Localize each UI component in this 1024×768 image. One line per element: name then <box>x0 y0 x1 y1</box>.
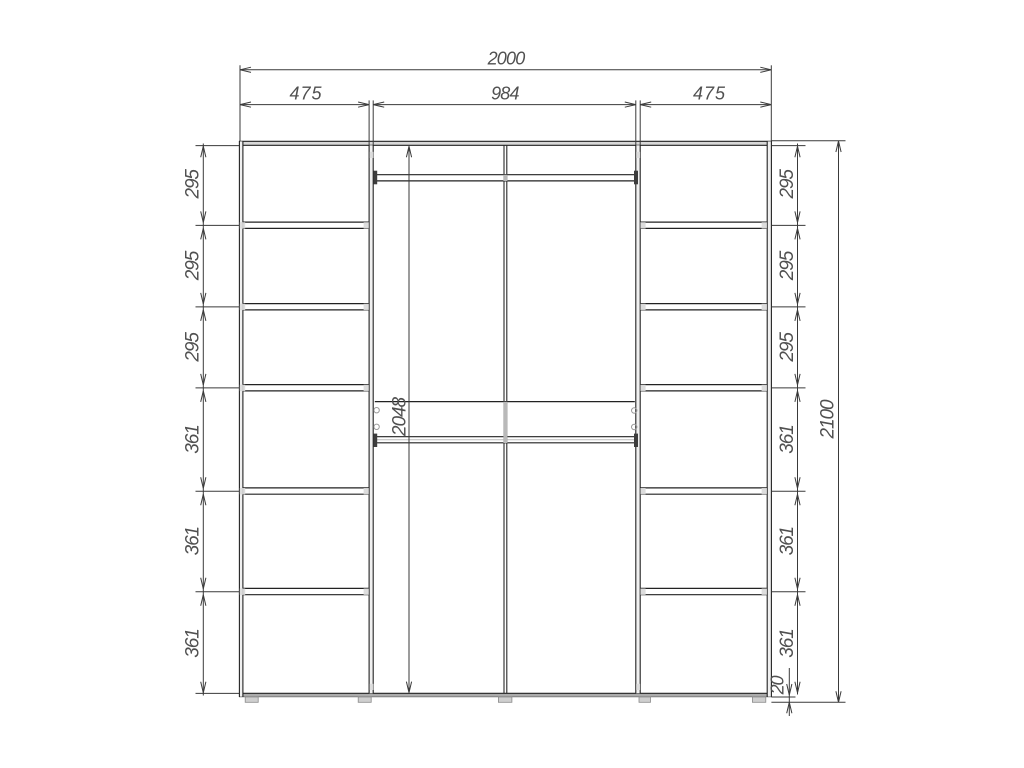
svg-text:984: 984 <box>491 83 519 103</box>
svg-text:295: 295 <box>777 332 798 363</box>
svg-text:295: 295 <box>777 169 798 200</box>
svg-text:2000: 2000 <box>487 48 526 68</box>
svg-text:295: 295 <box>182 169 203 200</box>
svg-text:475: 475 <box>693 83 726 103</box>
svg-text:361: 361 <box>777 629 798 657</box>
svg-text:295: 295 <box>777 250 798 281</box>
svg-text:2100: 2100 <box>818 399 839 439</box>
svg-text:295: 295 <box>182 332 203 363</box>
svg-text:475: 475 <box>289 83 322 103</box>
svg-text:361: 361 <box>777 425 798 453</box>
svg-text:295: 295 <box>182 250 203 281</box>
svg-text:361: 361 <box>182 629 203 657</box>
svg-text:361: 361 <box>182 527 203 555</box>
svg-text:20: 20 <box>768 676 788 696</box>
svg-text:361: 361 <box>777 527 798 555</box>
svg-text:2048: 2048 <box>389 397 410 437</box>
svg-text:361: 361 <box>182 425 203 453</box>
